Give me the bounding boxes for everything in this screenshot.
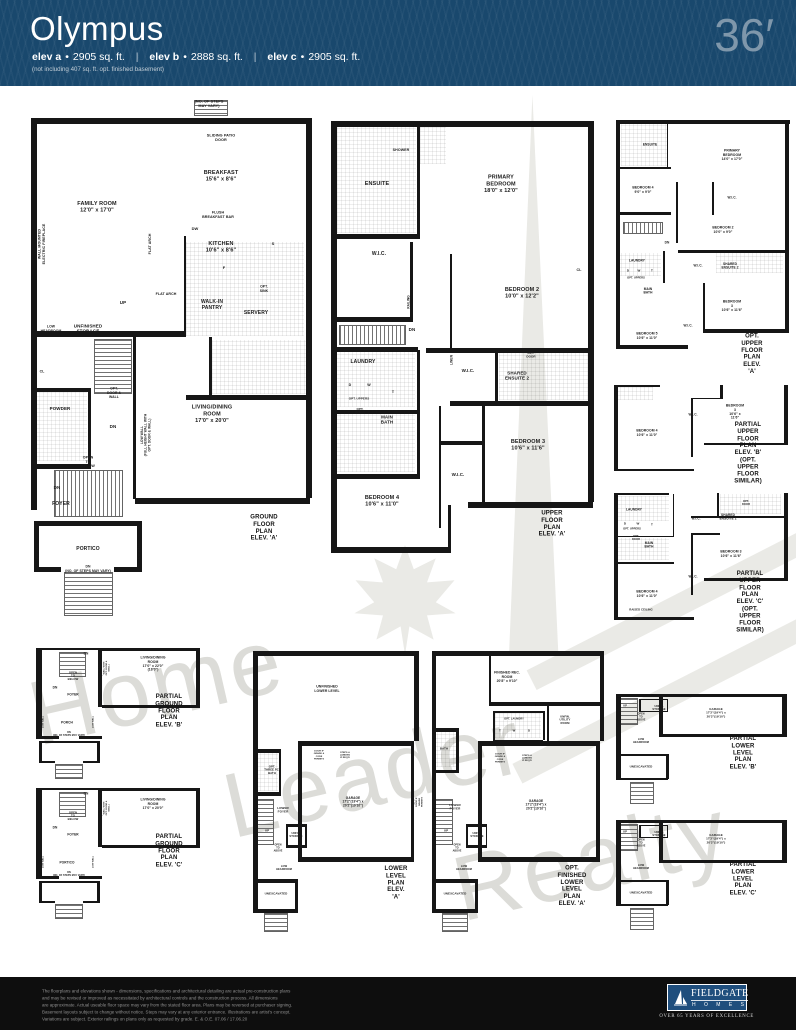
wall-segment xyxy=(588,121,594,502)
plan-label: W xyxy=(513,729,516,732)
plan-partial-lower-level-elev-b: UPOPEN TO ABOVEUNFIN. STORAGEGARAGE 17'2… xyxy=(612,692,794,807)
wall-segment xyxy=(784,493,789,580)
wall-segment xyxy=(196,788,200,847)
wall-segment xyxy=(286,824,307,827)
wall-segment xyxy=(676,182,678,242)
plan-label: OPEN TO ABOVE xyxy=(637,839,646,847)
plan-label: DN xyxy=(84,653,89,657)
wall-segment xyxy=(639,699,641,712)
wall-segment xyxy=(331,121,337,553)
wall-segment xyxy=(468,502,592,508)
plan-label: STEPS & LANDING IF REQ'D xyxy=(522,754,532,762)
plan-label: DN (NO. OF STEPS MAY VARY) xyxy=(53,871,85,877)
wall-segment xyxy=(135,498,311,504)
plan-label: W.I.C. xyxy=(451,473,464,478)
wall-segment xyxy=(616,754,669,756)
plan-label: (NO. OF STEPS MAY VARY) xyxy=(195,99,224,108)
wall-segment xyxy=(133,337,136,499)
plan-label: BEDROOM 5 10'6" x 11'0" xyxy=(636,332,657,340)
plan-label: DN (NO. OF STEPS MAY VARY) xyxy=(66,565,112,573)
plan-label: SHARED ENSUITE 2 xyxy=(505,371,529,382)
plan-label: FOYER xyxy=(67,833,78,837)
wall-segment xyxy=(616,880,669,882)
wall-segment xyxy=(691,516,789,518)
wall-segment xyxy=(614,536,675,537)
wall-segment xyxy=(331,474,420,479)
plan-label: BEDROOM 4 9'0" x 9'0" xyxy=(632,186,653,194)
plan-label: LOW WALL xyxy=(42,856,45,868)
wall-segment xyxy=(83,901,99,903)
plan-label: UNFIN. STORAGE xyxy=(290,832,303,838)
wall-segment xyxy=(432,728,459,732)
plan-label: DOOR IF GRADE & CODE PERMITS xyxy=(314,750,324,760)
plan-label: STEPS & LANDING IF REQ'D xyxy=(339,751,349,759)
plan-label: SLIDING PATIO DOOR xyxy=(203,134,239,143)
wall-segment xyxy=(432,879,479,883)
wall-segment xyxy=(663,251,665,284)
wall-segment xyxy=(620,167,671,170)
wall-segment xyxy=(336,317,412,322)
plan-label: GARAGE 17'2"(19'4") x 20'2"(19'10") xyxy=(342,796,364,807)
plan-label: OPT. DOOR xyxy=(526,352,535,359)
plan-caption: OPT. FINISHED LOWER LEVEL PLAN ELEV. 'A' xyxy=(558,864,587,906)
stairs xyxy=(54,470,123,518)
wall-segment xyxy=(596,741,600,862)
wall-segment xyxy=(666,754,669,779)
wall-segment xyxy=(600,651,605,741)
plan-label: SHOWER xyxy=(393,147,410,151)
wall-segment xyxy=(39,741,100,743)
plan-label: W.I.C. xyxy=(692,518,701,522)
wall-segment xyxy=(448,505,451,553)
plan-label: PRIMARY BEDROOM 14'0" x 17'0" xyxy=(722,149,743,161)
plan-caption: PARTIAL UPPER FLOOR PLAN ELEV. 'B' (OPT.… xyxy=(734,421,762,485)
plan-label: LOWER FOYER xyxy=(449,804,460,811)
plan-label: BEDROOM 2 10'0" x 9'0" xyxy=(712,226,733,234)
plan-label: OPT. DOOR xyxy=(356,407,365,414)
wall-segment xyxy=(616,694,787,697)
plan-label: OPT. UPPERS xyxy=(349,397,369,401)
wall-segment xyxy=(495,352,498,403)
tiled-floor-area xyxy=(35,392,87,461)
fieldgate-homes-label: H O M E S xyxy=(691,1000,748,1008)
wall-segment xyxy=(298,741,301,862)
wall-segment xyxy=(673,494,675,536)
plan-label: BATH xyxy=(440,748,448,752)
divider: | xyxy=(136,51,139,63)
plan-label: DN xyxy=(53,826,58,830)
wall-segment xyxy=(432,909,479,913)
wall-segment xyxy=(253,792,281,796)
plan-label: RAISED CEILING xyxy=(630,609,653,612)
wall-segment xyxy=(31,118,37,510)
plan-label: LOW WALL xyxy=(92,716,95,728)
plan-caption: OPT. UPPER FLOOR PLAN ELEV. 'A' xyxy=(740,333,765,375)
plan-caption: PARTIAL UPPER FLOOR PLAN ELEV. 'C' (OPT.… xyxy=(736,570,764,634)
plan-label: POWDER xyxy=(49,406,70,411)
plan-label: DN xyxy=(53,486,60,491)
plan-label: BEDROOM 2 10'0" x 12'2" xyxy=(505,286,539,299)
plan-label: D xyxy=(348,383,351,387)
plan-caption: PARTIAL GROUND FLOOR PLAN ELEV. 'B' xyxy=(155,693,182,728)
plan-label: UP xyxy=(623,704,627,707)
wall-segment xyxy=(83,761,99,763)
wall-segment xyxy=(298,741,413,746)
elev-c-spec: elev c•2905 sq. ft. xyxy=(267,51,360,63)
wall-segment xyxy=(426,348,593,353)
wall-segment xyxy=(209,337,212,400)
plan-label: LOW HEADROOM xyxy=(456,865,472,871)
wall-segment xyxy=(432,651,437,911)
plan-label: SERVERY xyxy=(243,310,267,316)
plan-label: LAUNDRY xyxy=(351,359,376,365)
wall-segment xyxy=(616,820,621,905)
plan-label: UNFINISHED LOWER LEVEL xyxy=(315,684,340,692)
wall-segment xyxy=(666,880,669,905)
plan-label: DN xyxy=(110,425,117,430)
stairs xyxy=(442,913,467,931)
wall-segment xyxy=(616,904,669,906)
elevation-specs: elev a•2905 sq. ft. | elev b•2888 sq. ft… xyxy=(32,51,360,63)
stairs xyxy=(55,764,83,778)
plan-label: OPT. LAUNDRY xyxy=(505,717,525,720)
plan-label: W.I.C. xyxy=(688,575,697,579)
wall-segment xyxy=(298,857,413,862)
plan-label: LIVING/DINING ROOM 17'0" x 22'0" (18'0") xyxy=(141,656,166,672)
plan-label: PORTICO xyxy=(77,546,100,552)
plan-label: DN xyxy=(664,241,669,245)
stairs xyxy=(630,908,654,930)
wall-segment xyxy=(466,824,488,827)
plan-label: T xyxy=(651,269,653,273)
tiled-floor-area xyxy=(212,340,308,394)
wall-segment xyxy=(450,401,593,406)
wall-segment xyxy=(97,881,100,903)
wall-segment xyxy=(691,399,693,457)
plan-label: GARAGE 17'2"(19'4") x 20'2"(19'10") xyxy=(524,799,547,810)
wall-segment xyxy=(478,741,482,862)
plan-partial-ground-floor-elev-c: DNLIVING/DINING ROOM 17'0" x 20'0"LOW WA… xyxy=(33,785,205,920)
wall-segment xyxy=(620,212,671,215)
plan-label: UNFINISHED STORAGE xyxy=(74,324,102,335)
wall-segment xyxy=(331,347,419,352)
plan-label: W xyxy=(367,383,370,387)
plan-label: DN xyxy=(84,793,89,797)
wall-segment xyxy=(616,820,787,823)
plan-label: MAIN BATH xyxy=(644,541,653,549)
disclaimer-text: The floorplans and elevations shown - di… xyxy=(42,988,357,1023)
wall-segment xyxy=(493,711,543,714)
plan-label: DN xyxy=(53,686,58,690)
plan-label: LOW WALL (FULL HEIGHT WALL WITH OPT. DOO… xyxy=(97,657,110,679)
wall-segment xyxy=(659,694,663,735)
wall-segment xyxy=(114,567,141,572)
wall-segment xyxy=(616,120,791,124)
plan-caption: PARTIAL GROUND FLOOR PLAN ELEV. 'C' xyxy=(155,833,182,868)
plan-ground-floor-elev-a: (NO. OF STEPS MAY VARY)SLIDING PATIO DOO… xyxy=(28,96,316,626)
wall-segment xyxy=(691,535,693,595)
stairs xyxy=(257,799,274,845)
plan-label: UP xyxy=(265,829,269,833)
plan-label: GARAGE 17'2"(19'4") x 20'2"(19'10") xyxy=(704,833,727,844)
plan-label: LOWER FOYER xyxy=(277,807,288,814)
wall-segment xyxy=(102,845,200,848)
wall-segment xyxy=(432,651,605,656)
wall-segment xyxy=(97,741,100,763)
plan-label: W.I.C. xyxy=(462,369,475,374)
wall-segment xyxy=(466,845,488,848)
wall-segment xyxy=(678,250,790,253)
brochure-page: Olympus elev a•2905 sq. ft. | elev b•288… xyxy=(0,0,796,1030)
plan-label: T xyxy=(499,729,501,732)
plan-label: PORCH xyxy=(61,721,73,725)
wall-segment xyxy=(614,617,694,620)
floor-plans-canvas: Home Leader Realty (NO. OF STEPS MAY VAR… xyxy=(0,86,796,977)
plan-caption: PARTIAL LOWER LEVEL PLAN ELEV. 'C' xyxy=(728,861,759,896)
wall-segment xyxy=(667,699,669,712)
plan-opt-upper-floor-elev-a: ENSUITEPRIMARY BEDROOM 14'0" x 17'0"BEDR… xyxy=(612,112,794,364)
wall-segment xyxy=(616,120,621,349)
tiled-floor-area xyxy=(617,538,669,560)
plan-label: BREAKFAST 15'6" x 8'6" xyxy=(204,169,239,182)
plan-label: LOW WALL xyxy=(92,856,95,868)
wall-segment xyxy=(659,820,663,861)
plan-caption: GROUND FLOOR PLAN ELEV. 'A' xyxy=(249,514,280,542)
wall-segment xyxy=(456,728,458,772)
wall-segment xyxy=(196,648,200,707)
plan-label: OPT. THREE PC. BATH xyxy=(265,765,280,775)
wall-segment xyxy=(478,857,599,862)
plan-label: LAUNDRY xyxy=(629,259,645,263)
plan-label: FINISHED REC. ROOM 20'8" x 9'10" xyxy=(490,671,524,683)
plan-label: BEDROOM 4 10'6" x 11'0" xyxy=(636,590,657,598)
fieldgate-logo-box: FIELDGATE H O M E S xyxy=(667,984,747,1011)
plan-label: LIVING/DINING ROOM 17'0" x 20'0" xyxy=(184,404,241,423)
plan-label: LOW WALL xyxy=(137,543,141,561)
wall-segment xyxy=(450,254,453,351)
divider: | xyxy=(254,51,257,63)
plan-label: MAIN BATH xyxy=(644,287,653,295)
plan-label: LINEN xyxy=(450,355,454,365)
wall-segment xyxy=(616,778,669,780)
plan-partial-upper-floor-elev-b: BEDROOM 4 10'6" x 11'0"W.I.C.BEDROOM 3 1… xyxy=(610,385,794,485)
plan-label: W.I.C. xyxy=(728,196,737,200)
wall-segment xyxy=(614,469,694,471)
wall-segment xyxy=(614,562,675,563)
wall-segment xyxy=(88,388,91,465)
plan-label: BEDROOM 3 10'6" x 11'6" xyxy=(721,550,742,558)
plan-label: LOW HEADROOM xyxy=(276,865,292,871)
plan-label: DOOR IF GRADE & CODE PERMITS xyxy=(495,753,505,763)
plan-label: T xyxy=(651,523,653,527)
plan-label: UNFIN. STORAGE xyxy=(470,832,483,838)
footer: The floorplans and elevations shown - di… xyxy=(0,977,796,1030)
plan-label: OPT. DOOR & WALL xyxy=(107,387,121,399)
wall-segment xyxy=(39,901,55,903)
wall-segment xyxy=(614,385,619,471)
plan-label: FLAT ARCH xyxy=(148,234,152,255)
plan-label: WALK-IN PANTRY xyxy=(201,299,223,311)
plan-label: UNFIN. UTILITY ROOM xyxy=(559,715,571,725)
wall-segment xyxy=(785,120,790,333)
wall-segment xyxy=(34,567,61,572)
wall-segment xyxy=(336,234,418,239)
plan-opt-finished-lower-level: FINISHED REC. ROOM 20'8" x 9'10"OPT. LAU… xyxy=(428,645,608,935)
wall-segment xyxy=(331,410,417,415)
plan-label: PRIMARY BEDROOM 18'0" x 12'0" xyxy=(474,174,527,193)
wall-segment xyxy=(432,770,459,774)
tiled-floor-area xyxy=(336,413,416,472)
plan-label: FOYER xyxy=(67,693,78,697)
wall-segment xyxy=(482,406,485,502)
plan-label: BEDROOM 3 10'6" x 11'6" xyxy=(511,439,545,452)
fieldgate-logo: FIELDGATE H O M E S OVER 65 YEARS OF EXC… xyxy=(632,984,782,1024)
plan-partial-upper-floor-elev-c: LAUNDRYDWTOPT. UPPERSOPT. DOORMAIN BATHW… xyxy=(610,490,794,630)
wall-segment xyxy=(186,395,310,400)
wall-segment xyxy=(493,711,495,740)
plan-label: W xyxy=(638,269,641,273)
plan-label: UNFIN. STORAGE xyxy=(653,705,666,711)
wall-segment xyxy=(547,703,549,741)
wall-segment xyxy=(489,702,601,706)
plan-label: FOYER xyxy=(52,501,70,507)
tiled-floor-area xyxy=(420,123,446,165)
stairs xyxy=(630,782,654,804)
plan-label: OPT. DOOR IF GRADE PERMITS xyxy=(412,797,422,807)
plan-label: DN (NO. OF STEPS MAY VARY) xyxy=(53,731,85,737)
wall-segment xyxy=(667,825,669,838)
plan-label: D xyxy=(624,522,626,526)
wall-segment xyxy=(691,398,722,399)
wall-segment xyxy=(417,350,420,475)
plan-label: RAILING xyxy=(407,295,411,309)
plan-label: W.I.C. xyxy=(693,264,702,268)
wall-segment xyxy=(691,533,720,535)
plan-label: BEDROOM 4 10'6" x 11'0" xyxy=(636,429,657,437)
plan-label: UNEXCAVATED xyxy=(444,893,467,897)
plan-label: LOW WALL (FULL HEIGHT WALL WITH OPT. DOO… xyxy=(140,414,151,457)
wall-segment xyxy=(616,694,621,779)
wall-segment xyxy=(782,694,787,736)
wall-segment xyxy=(614,493,619,619)
plan-label: F xyxy=(223,266,226,271)
plan-label: D xyxy=(528,729,530,732)
plan-label: W.I.C. xyxy=(372,251,386,257)
basement-note: (not including 407 sq. ft. opt. finished… xyxy=(32,66,164,73)
wall-segment xyxy=(331,547,450,553)
plan-upper-floor-elev-a: SHOWERENSUITEPRIMARY BEDROOM 18'0" x 12'… xyxy=(328,108,598,570)
plan-label: OPT. SINK xyxy=(260,285,268,293)
plan-label: KITCHEN 10'6" x 8'6" xyxy=(206,241,237,254)
elev-b-spec: elev b•2888 sq. ft. xyxy=(149,51,242,63)
wall-segment xyxy=(417,121,420,239)
tiled-floor-area xyxy=(720,494,781,514)
wall-segment xyxy=(782,820,787,862)
plan-label: BEDROOM 3 10'6" x 11'6" xyxy=(725,404,745,420)
plan-label: OPT. DOOR xyxy=(742,500,750,506)
wall-segment xyxy=(31,118,312,124)
plan-label: UNFIN. STORAGE xyxy=(653,831,666,837)
wall-segment xyxy=(253,879,298,883)
plan-lower-level-elev-a: UNFINISHED LOWER LEVELOPT. THREE PC. BAT… xyxy=(250,645,422,935)
plan-label: LOW HEADROOM xyxy=(633,864,649,870)
wall-segment xyxy=(34,521,142,526)
plan-label: LOW HEADROOM xyxy=(41,325,62,333)
plan-label: OPEN TO BELOW xyxy=(82,455,96,468)
wall-segment xyxy=(331,121,594,127)
fieldgate-tagline: OVER 65 YEARS OF EXCELLENCE xyxy=(660,1013,755,1018)
plan-label: BEDROOM 4 10'6" x 11'0" xyxy=(365,494,399,507)
wall-segment xyxy=(414,651,418,741)
wall-segment xyxy=(253,651,257,911)
wall-segment xyxy=(712,182,714,215)
wall-segment xyxy=(31,388,91,393)
wall-segment xyxy=(720,385,722,399)
plan-label: OPT. UPPERS xyxy=(623,528,641,531)
plan-label: W.I.C. xyxy=(688,413,697,417)
plan-label: OPEN TO BELOW xyxy=(67,671,78,681)
plan-label: OPEN TO ABOVE xyxy=(273,844,282,852)
page-title: Olympus xyxy=(30,10,164,48)
plan-label: LAUNDRY xyxy=(626,508,642,512)
fieldgate-logo-text: FIELDGATE H O M E S xyxy=(691,988,748,1008)
plan-partial-lower-level-elev-c: UPOPEN TO ABOVEUNFIN. STORAGEGARAGE 17'2… xyxy=(612,818,794,933)
plan-caption: UPPER FLOOR PLAN ELEV. 'A' xyxy=(538,510,566,538)
plan-label: FAMILY ROOM 12'0" x 17'0" xyxy=(77,201,116,214)
plan-label: OPEN TO ABOVE xyxy=(637,713,646,721)
plan-label: OPEN TO ABOVE xyxy=(452,844,461,852)
plan-label: T xyxy=(392,390,394,394)
wall-segment xyxy=(667,120,669,170)
wall-segment xyxy=(306,118,312,497)
wall-segment xyxy=(39,741,42,763)
plan-label: LIVING/DINING ROOM 17'0" x 20'0" xyxy=(141,798,166,810)
plan-label: LOW WALL (FULL HEIGHT WALL WITH OPT. DOO… xyxy=(97,797,110,819)
plan-label: W.I.C. xyxy=(684,324,693,328)
plan-label: UP xyxy=(623,830,627,833)
plan-label: LOW WALL xyxy=(42,716,45,728)
plan-label: W xyxy=(636,522,639,526)
wall-segment xyxy=(102,648,200,651)
tiled-floor-area xyxy=(186,242,304,335)
plan-label: BEDROOM 3 10'6" x 11'6" xyxy=(722,300,743,312)
wall-segment xyxy=(410,242,413,322)
plan-label: OPT. DOOR xyxy=(632,535,640,541)
plan-label: UP xyxy=(120,300,126,305)
wall-segment xyxy=(639,699,668,700)
wall-segment xyxy=(184,236,187,336)
wall-segment xyxy=(659,734,786,737)
plan-label: SHARED ENSUITE 2 xyxy=(719,513,736,521)
wall-segment xyxy=(286,845,307,848)
wall-segment xyxy=(102,788,200,791)
wall-segment xyxy=(102,705,200,708)
plan-caption: PARTIAL LOWER LEVEL PLAN ELEV. 'B' xyxy=(728,735,759,770)
plan-label: UNEXCAVATED xyxy=(630,765,653,769)
plan-label: SHARED ENSUITE 2 xyxy=(722,262,739,270)
wall-segment xyxy=(784,385,789,444)
wall-segment xyxy=(39,881,100,883)
stairs xyxy=(64,572,113,617)
wall-segment xyxy=(439,406,442,529)
wall-segment xyxy=(543,711,545,740)
wall-segment xyxy=(703,283,705,328)
plan-label: UP xyxy=(444,829,448,833)
plan-label: S xyxy=(271,242,274,247)
plan-label: FLUSH BREAKFAST BAR xyxy=(200,211,235,219)
wall-segment xyxy=(616,345,689,349)
plan-label: FLAT ARCH xyxy=(156,292,177,296)
